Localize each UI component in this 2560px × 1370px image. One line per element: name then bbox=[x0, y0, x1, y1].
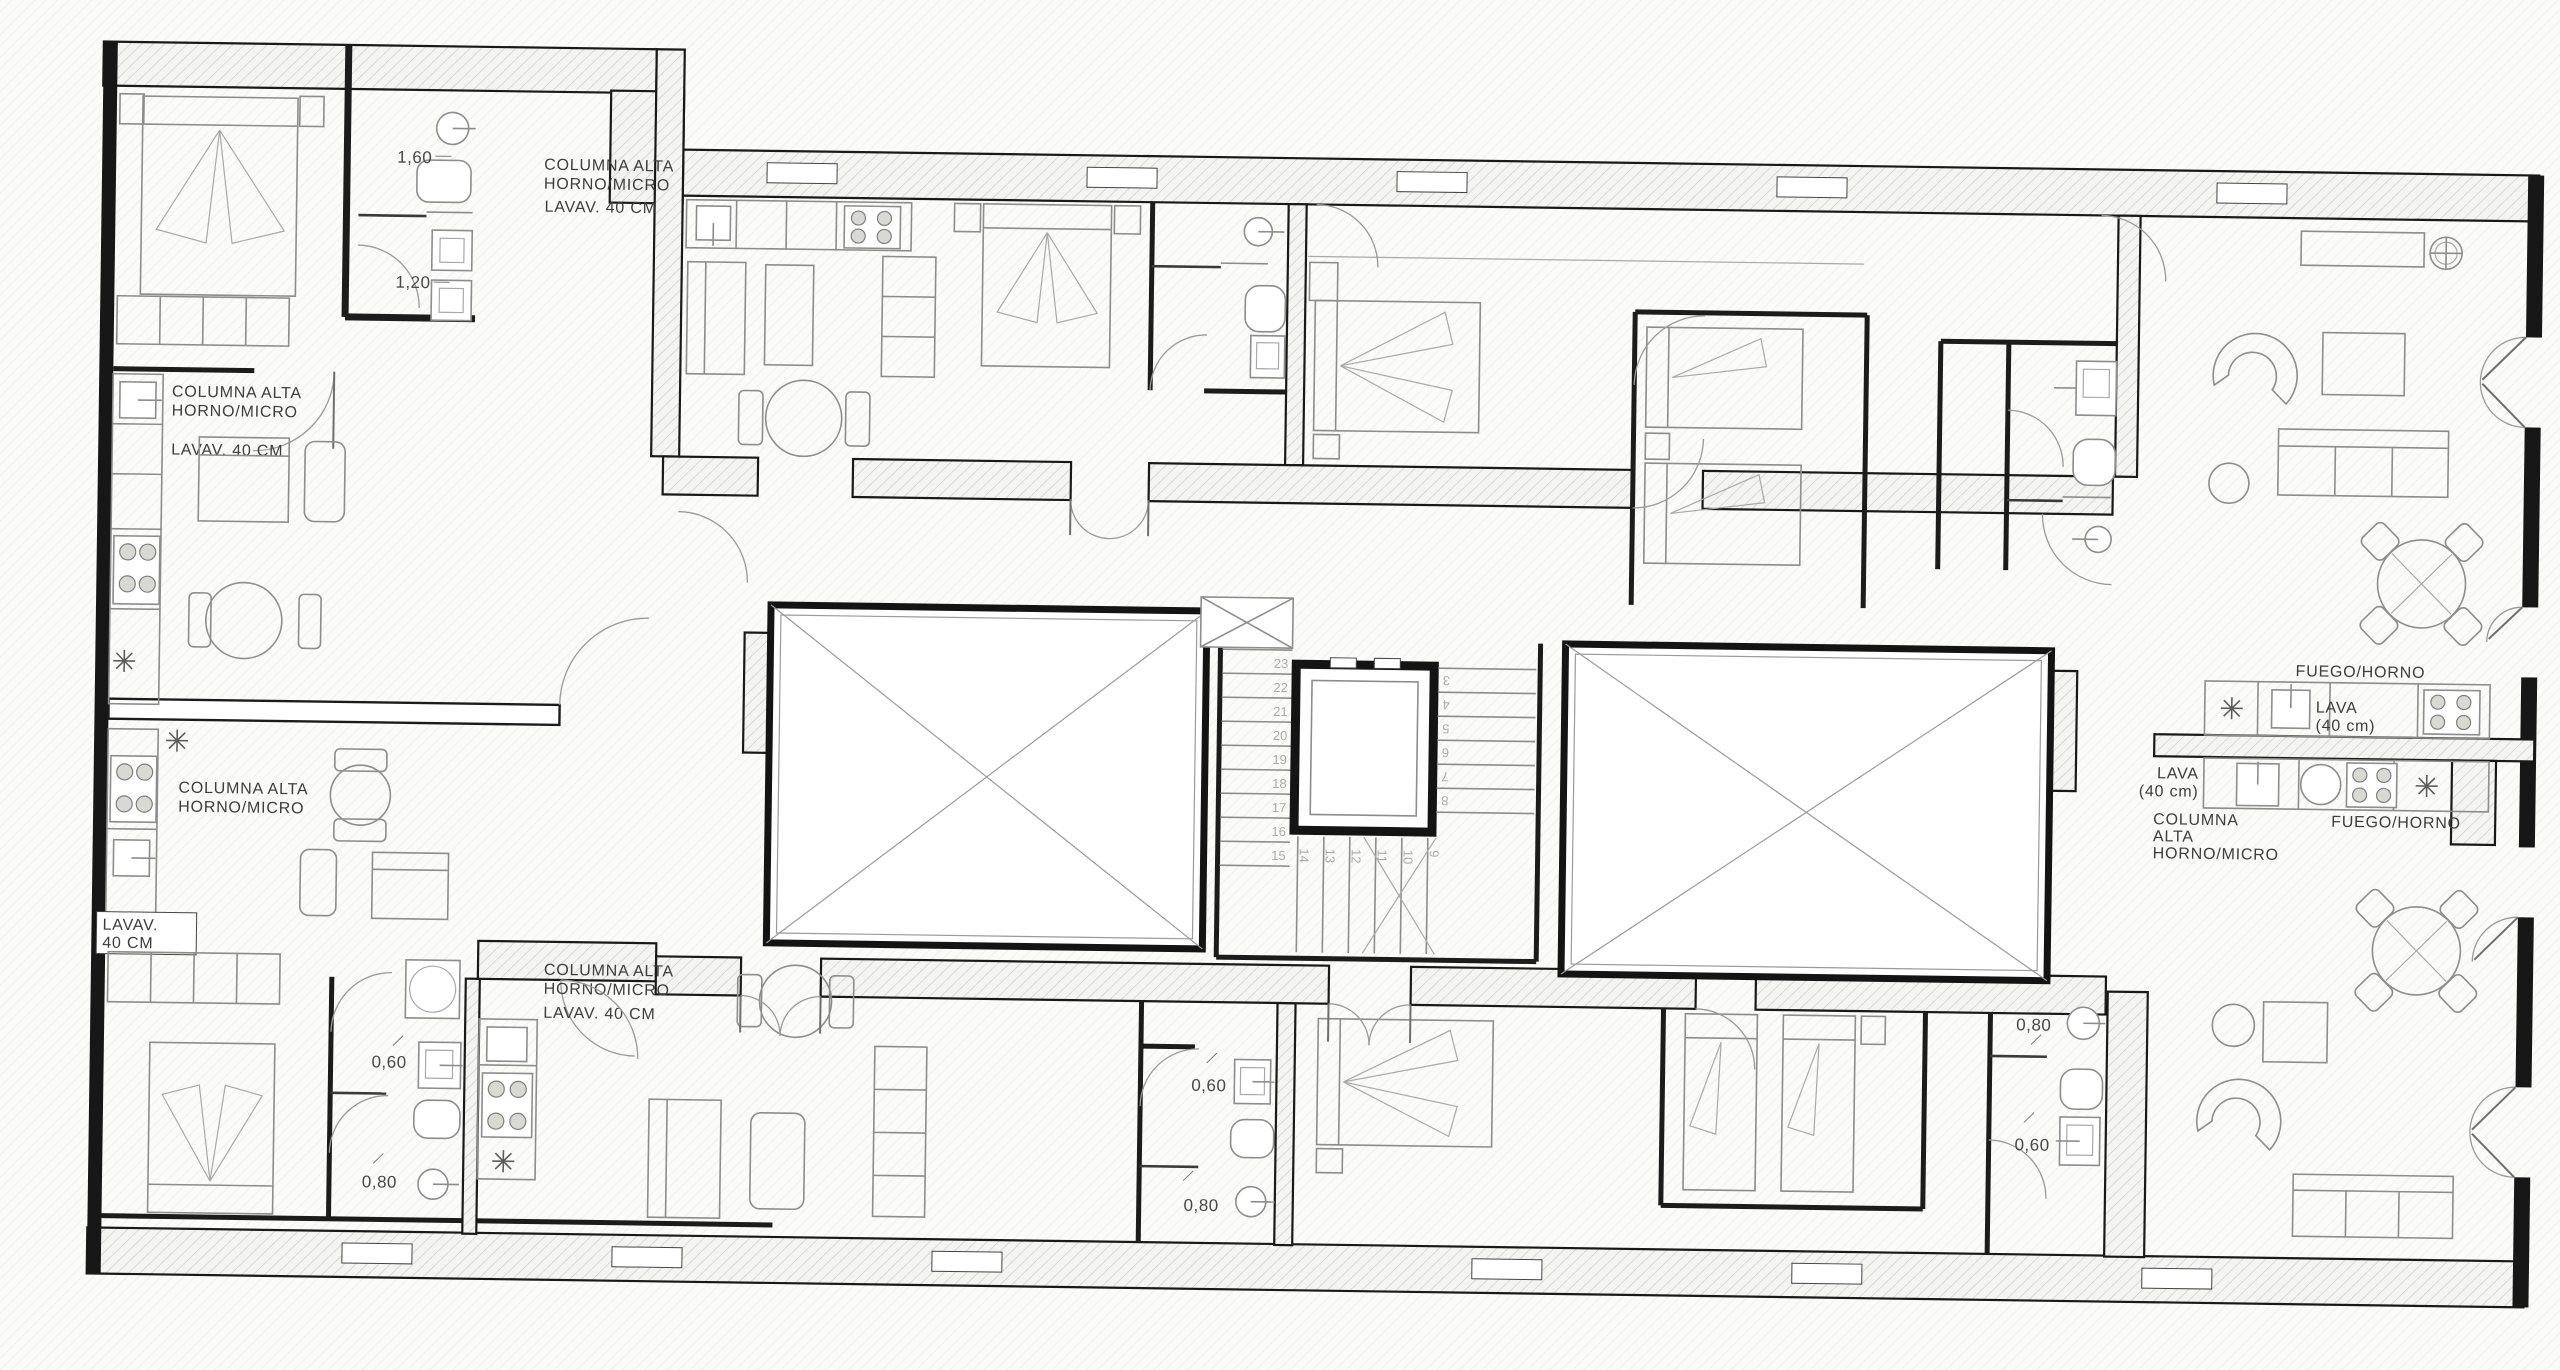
stove-burners bbox=[2346, 763, 2397, 808]
dimension-label: 0,60 bbox=[371, 1052, 406, 1071]
stair-number: 11 bbox=[1375, 849, 1390, 863]
elevator-shaft bbox=[1294, 664, 1434, 832]
floor-plan-drawing: 23 22 21 20 19 18 17 16 15 3 4 5 6 7 bbox=[0, 0, 2560, 1370]
window bbox=[612, 1247, 682, 1268]
wardrobe bbox=[117, 296, 290, 346]
wall bbox=[113, 369, 254, 371]
kitchen-label: FUEGO/HORNO bbox=[2295, 663, 2425, 682]
stair-wall bbox=[1216, 957, 1536, 961]
nightstand bbox=[1114, 206, 1140, 234]
apartment-a: 1,60 1,20 COLUMNA ALTA HORNO/MICRO LAVA bbox=[109, 42, 657, 711]
door-arc bbox=[1316, 204, 1379, 267]
stair-flight-bottom: 14 13 12 11 10 9 bbox=[1295, 836, 1442, 954]
nightstand bbox=[1861, 1016, 1885, 1044]
light-well-2 bbox=[1561, 644, 2078, 981]
toilet bbox=[1245, 285, 1286, 332]
dimension-label: 0,80 bbox=[362, 1172, 397, 1191]
bathroom-b bbox=[1150, 202, 1289, 392]
kitchen-label: HORNO/MICRO bbox=[178, 799, 304, 818]
stair-number: 7 bbox=[1441, 769, 1448, 784]
window bbox=[767, 163, 837, 184]
single-bed bbox=[1683, 1014, 1757, 1191]
dining-table bbox=[205, 582, 282, 659]
armchair bbox=[300, 849, 337, 915]
vent-icon bbox=[2221, 697, 2243, 719]
dimension-label: 0,60 bbox=[2014, 1135, 2049, 1154]
kitchen-label: COLUMNA ALTA bbox=[544, 157, 674, 176]
interior-walls bbox=[101, 42, 2543, 1263]
door-arc bbox=[1140, 1048, 1199, 1107]
partition bbox=[330, 1093, 386, 1094]
stair-wall bbox=[1216, 597, 1221, 957]
kitchen-label: LAVA bbox=[2316, 699, 2358, 717]
vent-icon bbox=[166, 729, 188, 751]
nightstand bbox=[1316, 1149, 1342, 1173]
stair-number: 3 bbox=[1443, 673, 1450, 688]
stair-flight-right: 3 4 5 6 7 8 bbox=[1436, 668, 1536, 813]
wall bbox=[1923, 1012, 1926, 1209]
elevator-door bbox=[1330, 658, 1356, 668]
kitchen-label: COLUMNA ALTA bbox=[172, 384, 302, 403]
stair-wall bbox=[1536, 644, 1540, 962]
curved-armchair bbox=[2213, 333, 2298, 404]
kitchen-label: LAVAV. 40 CM bbox=[544, 199, 656, 218]
wall bbox=[1141, 1046, 1195, 1047]
apartment-b: COLUMNA ALTA HORNO/MICRO LAVAV. 40 CM bbox=[538, 157, 1289, 590]
bathroom-e: 0,60 0,80 bbox=[328, 959, 464, 1221]
stair-number: 6 bbox=[1442, 745, 1449, 760]
washbasin-round bbox=[2300, 764, 2341, 805]
corridor-wall-top bbox=[853, 459, 1072, 500]
kitchen-label: HORNO/MICRO bbox=[2153, 845, 2279, 864]
window bbox=[2217, 183, 2287, 204]
kitchen-label: ALTA bbox=[2153, 828, 2194, 846]
twin-bedroom bbox=[1631, 312, 1867, 608]
entry-double-door bbox=[1070, 499, 1149, 539]
sliding-door bbox=[2063, 497, 2111, 498]
kitchen-label: LAVAV. 40 CM bbox=[543, 1005, 655, 1024]
wall bbox=[1863, 315, 1867, 608]
wall bbox=[1661, 1008, 1664, 1205]
partition bbox=[2007, 500, 2063, 501]
double-bed bbox=[952, 203, 1140, 368]
double-bed bbox=[117, 94, 324, 297]
kitchen-label: FUEGO/HORNO bbox=[2331, 814, 2461, 833]
nightstand bbox=[954, 203, 980, 231]
kitchen-label: COLUMNA ALTA bbox=[544, 962, 674, 981]
corridor-wall-top bbox=[1149, 463, 1633, 508]
kitchen-d: FUEGO/HORNO LAVA (40 cm) bbox=[2204, 662, 2490, 739]
partition bbox=[1139, 1166, 1198, 1167]
balcony-door bbox=[2469, 1087, 2515, 1178]
apartment-f: COLUMNA ALTA HORNO/MICRO LAVAV. 40 CM bbox=[476, 961, 1278, 1245]
kitchen-f: COLUMNA ALTA HORNO/MICRO LAVAV. 40 CM bbox=[477, 961, 674, 1182]
kitchen-e: COLUMNA ALTA HORNO/MICRO LAVAV. 40 CM bbox=[96, 729, 309, 957]
door-arc bbox=[331, 972, 392, 1033]
kitchen-a: COLUMNA ALTA HORNO/MICRO LAVAV. 40 CM bbox=[109, 374, 303, 707]
chair bbox=[298, 594, 321, 648]
stove-burners bbox=[2423, 690, 2480, 735]
stair-flight-left: 23 22 21 20 19 18 17 16 15 bbox=[1219, 649, 1292, 866]
sofa bbox=[2292, 1174, 2453, 1238]
window bbox=[932, 1251, 1002, 1272]
nightstand bbox=[1645, 433, 1669, 459]
stair-number: 5 bbox=[1442, 721, 1449, 736]
elevator bbox=[1294, 657, 1434, 832]
apartment-g: 0,80 0,60 bbox=[1315, 997, 2105, 1257]
double-bed bbox=[1313, 300, 1480, 460]
apartment-c bbox=[1303, 204, 2118, 611]
vent-icon bbox=[113, 650, 135, 672]
elevator-door bbox=[1374, 658, 1400, 668]
chair bbox=[845, 392, 870, 446]
vent-icon bbox=[2416, 775, 2438, 797]
door-arc bbox=[560, 617, 649, 706]
stove-burners bbox=[113, 536, 160, 605]
partition bbox=[1990, 1056, 2047, 1057]
party-wall-e-f bbox=[462, 979, 480, 1234]
closet bbox=[1309, 262, 1338, 300]
kitchen-label: (40 cm) bbox=[2315, 717, 2375, 735]
sofa bbox=[372, 852, 449, 919]
wall bbox=[2006, 342, 2009, 570]
wall bbox=[1631, 312, 1635, 605]
console-table bbox=[764, 265, 813, 366]
door-leaf bbox=[333, 372, 334, 449]
wall bbox=[1204, 391, 1286, 392]
dining-table bbox=[765, 380, 842, 457]
sliding-door bbox=[427, 212, 473, 213]
stair-number: 18 bbox=[1272, 776, 1287, 791]
door-arc bbox=[329, 1095, 388, 1154]
wall bbox=[1635, 312, 1867, 315]
wall bbox=[1150, 202, 1153, 390]
dimension-label: 1,60 bbox=[397, 148, 432, 167]
sofa bbox=[648, 1099, 722, 1218]
wall bbox=[1987, 1013, 1990, 1255]
wall bbox=[1938, 341, 1941, 569]
stair-number: 12 bbox=[1349, 849, 1364, 864]
window bbox=[1792, 1263, 1862, 1284]
stair-number: 20 bbox=[1273, 728, 1288, 743]
exterior-wall-right bbox=[2516, 917, 2534, 1087]
shower bbox=[405, 960, 460, 1019]
stove-burners bbox=[844, 206, 901, 249]
entry-double-door bbox=[740, 995, 821, 1036]
sliding-door bbox=[1221, 263, 1268, 264]
stair-number: 23 bbox=[1274, 656, 1289, 671]
balcony-door bbox=[2487, 607, 2522, 642]
stair-number: 4 bbox=[1442, 697, 1449, 712]
wardrobe bbox=[107, 952, 280, 1004]
stair-number: 22 bbox=[1273, 680, 1288, 695]
facade-wall-top-left bbox=[103, 42, 657, 94]
bathroom-a: 1,60 1,20 bbox=[357, 111, 476, 321]
balcony-door bbox=[2472, 917, 2518, 963]
washbasin-square bbox=[432, 230, 473, 271]
balcony-door bbox=[2480, 337, 2526, 428]
double-bed bbox=[148, 1042, 275, 1214]
toilet bbox=[2060, 1069, 2103, 1110]
wall bbox=[1941, 341, 2117, 343]
wardrobe bbox=[873, 1046, 927, 1217]
bathroom-c bbox=[2006, 360, 2117, 552]
toilet bbox=[2073, 439, 2116, 486]
ceiling-light-icon bbox=[2430, 237, 2462, 269]
facade-wall-bottom bbox=[87, 1227, 2524, 1307]
armchair bbox=[304, 441, 345, 522]
partition bbox=[358, 215, 426, 216]
console-table bbox=[2301, 231, 2424, 267]
party-wall-c-d bbox=[2115, 216, 2141, 477]
door-arc bbox=[677, 512, 748, 583]
door-arc bbox=[2007, 410, 2064, 467]
light-well-1 bbox=[740, 605, 1207, 949]
kitchen-label: (40 cm) bbox=[2139, 783, 2199, 801]
stair-number: 10 bbox=[1401, 850, 1416, 865]
coffee-table bbox=[2263, 1002, 2328, 1063]
corridor-wall-bottom bbox=[821, 959, 1329, 1004]
kitchen-h: LAVA (40 cm) FUEGO/HORNO COLUMNA ALTA HO… bbox=[2138, 757, 2489, 867]
nightstand bbox=[1313, 434, 1339, 458]
exterior-wall-right bbox=[2512, 1177, 2530, 1307]
stair-number: 9 bbox=[1427, 850, 1442, 857]
kitchen-b bbox=[686, 200, 912, 251]
armchair bbox=[750, 1113, 805, 1210]
stair-number: 8 bbox=[1441, 793, 1448, 808]
wall bbox=[1661, 1205, 1923, 1209]
stair-number: 14 bbox=[1297, 848, 1312, 863]
round-dining-table bbox=[2357, 520, 2485, 648]
dimension-label: 1,20 bbox=[395, 273, 430, 292]
coffee-table bbox=[2322, 333, 2405, 396]
washbasin-square bbox=[431, 280, 472, 321]
party-wall-g-h bbox=[2104, 992, 2148, 1258]
bathroom-f: 0,60 0,80 bbox=[1138, 1001, 1277, 1245]
toilet bbox=[1230, 1119, 1274, 1158]
staircase-core: 23 22 21 20 19 18 17 16 15 3 4 5 6 7 bbox=[1196, 597, 1541, 962]
sofa bbox=[2278, 429, 2449, 497]
window-sill-line bbox=[1308, 256, 1864, 264]
exterior-wall-left bbox=[87, 42, 118, 1274]
bathroom-g: 0,80 0,60 bbox=[1987, 1006, 2105, 1257]
toilet bbox=[414, 1100, 461, 1139]
living-a bbox=[188, 437, 345, 660]
kitchen-label: LAVAV. 40 CM bbox=[171, 441, 283, 460]
stove-burners bbox=[482, 1073, 533, 1138]
stool bbox=[2212, 1004, 2255, 1047]
corridor-wall-top bbox=[1703, 471, 2113, 515]
floor-plan-canvas: 23 22 21 20 19 18 17 16 15 3 4 5 6 7 bbox=[0, 0, 2560, 1370]
kitchen-label: LAVA bbox=[2157, 765, 2199, 783]
dining-table bbox=[330, 765, 391, 826]
double-bed bbox=[1316, 1019, 1493, 1175]
corridor-wall-top bbox=[663, 456, 759, 495]
kitchen-label: HORNO/MICRO bbox=[172, 403, 298, 422]
kitchen-label: 40 CM bbox=[102, 935, 153, 953]
kitchen-label: HORNO/MICRO bbox=[544, 176, 670, 195]
chair bbox=[188, 593, 211, 647]
exterior-wall-right bbox=[2522, 427, 2541, 607]
wall bbox=[328, 977, 331, 1219]
twin-bedroom bbox=[1661, 1008, 1926, 1209]
stair-number: 15 bbox=[1271, 848, 1286, 863]
kitchen-label: LAVAV. bbox=[102, 917, 158, 935]
stair-number: 19 bbox=[1272, 752, 1287, 767]
stair-number: 13 bbox=[1323, 849, 1338, 864]
wall bbox=[1138, 1001, 1141, 1243]
round-dining-table bbox=[2352, 887, 2480, 1015]
window bbox=[342, 1243, 412, 1264]
curved-armchair bbox=[2196, 1079, 2281, 1150]
kitchen-label: HORNO/MICRO bbox=[544, 981, 670, 1000]
party-wall-f-g bbox=[1274, 1003, 1295, 1245]
kitchen-sink bbox=[487, 1027, 527, 1062]
nightstand bbox=[300, 96, 324, 126]
stair-number: 17 bbox=[1272, 800, 1287, 815]
exterior-wall-right bbox=[2526, 175, 2544, 337]
stool bbox=[2209, 463, 2250, 504]
single-bed bbox=[1781, 1015, 1855, 1192]
stair-number: 16 bbox=[1271, 824, 1286, 839]
vent-icon bbox=[492, 1150, 514, 1172]
wall bbox=[345, 45, 349, 317]
door-arc bbox=[1633, 438, 1704, 509]
single-bed bbox=[1646, 327, 1803, 429]
building: 23 22 21 20 19 18 17 16 15 3 4 5 6 7 bbox=[87, 42, 2546, 1308]
dimension-label: 0,80 bbox=[2016, 1015, 2051, 1034]
stove-burners bbox=[110, 756, 157, 823]
window bbox=[1397, 172, 1467, 193]
chair bbox=[334, 819, 386, 842]
partition bbox=[1152, 266, 1221, 267]
nightstand bbox=[120, 94, 144, 124]
sofa bbox=[686, 262, 746, 375]
wardrobe bbox=[881, 256, 936, 377]
dimension-label: 0,80 bbox=[1184, 1196, 1219, 1215]
door-arc bbox=[1695, 1009, 1756, 1070]
chair bbox=[738, 390, 763, 444]
party-wall-a-e bbox=[108, 699, 559, 725]
window bbox=[1777, 177, 1847, 198]
chair bbox=[335, 749, 387, 772]
dimension-label: 0,60 bbox=[1191, 1076, 1226, 1095]
washbasin-square bbox=[1250, 336, 1285, 378]
stair-number: 21 bbox=[1273, 704, 1288, 719]
kitchen-label: COLUMNA ALTA bbox=[178, 780, 308, 799]
party-wall-a-b bbox=[651, 49, 685, 456]
window bbox=[1472, 1259, 1542, 1280]
kitchen-label: COLUMNA bbox=[2153, 811, 2239, 829]
window bbox=[1087, 167, 1157, 188]
party-wall-b-c bbox=[1285, 204, 1307, 465]
door-arc bbox=[1150, 334, 1207, 391]
window bbox=[2142, 1268, 2212, 1289]
